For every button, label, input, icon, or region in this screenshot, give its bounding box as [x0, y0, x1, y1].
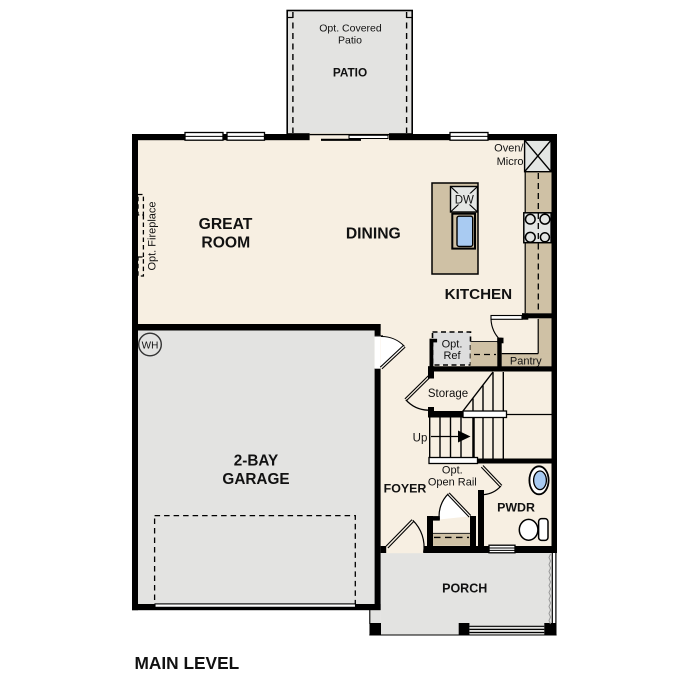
- svg-text:PWDR: PWDR: [497, 500, 535, 514]
- svg-text:GARAGE: GARAGE: [222, 471, 289, 488]
- svg-text:ROOM: ROOM: [201, 235, 250, 252]
- svg-text:2-BAY: 2-BAY: [234, 453, 279, 470]
- svg-text:DINING: DINING: [346, 226, 401, 243]
- svg-text:PORCH: PORCH: [442, 581, 487, 595]
- svg-text:PATIO: PATIO: [333, 65, 367, 79]
- svg-text:Opt. Fireplace: Opt. Fireplace: [147, 201, 159, 270]
- svg-text:Micro: Micro: [497, 156, 524, 168]
- svg-text:Ref: Ref: [443, 350, 461, 362]
- svg-text:Opt.: Opt.: [442, 465, 463, 477]
- svg-text:KITCHEN: KITCHEN: [445, 286, 513, 303]
- svg-text:DW: DW: [455, 195, 474, 207]
- svg-text:FOYER: FOYER: [384, 481, 427, 495]
- svg-text:Up: Up: [413, 433, 428, 445]
- svg-text:GREAT: GREAT: [199, 216, 253, 233]
- svg-text:Opt.: Opt.: [442, 339, 463, 351]
- svg-text:WH: WH: [142, 340, 159, 351]
- svg-text:Oven/: Oven/: [494, 143, 524, 155]
- svg-text:Storage: Storage: [428, 388, 468, 400]
- svg-text:Opt. Covered: Opt. Covered: [319, 23, 382, 35]
- svg-text:MAIN LEVEL: MAIN LEVEL: [135, 653, 240, 673]
- svg-text:Open Rail: Open Rail: [428, 477, 477, 489]
- svg-text:Patio: Patio: [338, 34, 362, 46]
- svg-text:Pantry: Pantry: [510, 355, 542, 367]
